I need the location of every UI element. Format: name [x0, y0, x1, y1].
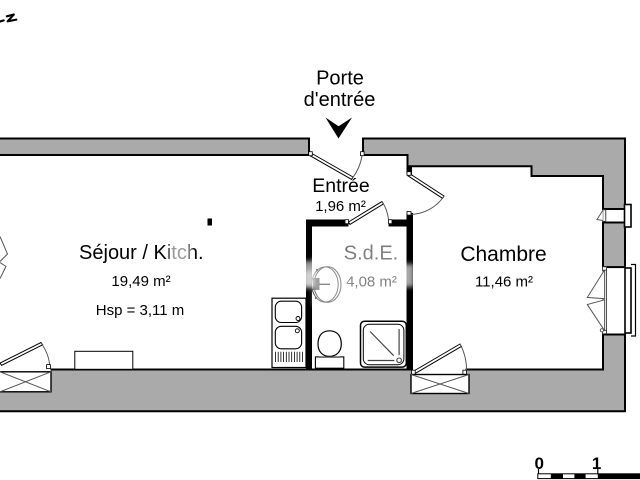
svg-text:Hsp = 3,11 m: Hsp = 3,11 m — [96, 302, 185, 319]
svg-text:Entrée: Entrée — [312, 175, 369, 197]
svg-text:19,49 m²: 19,49 m² — [111, 273, 170, 290]
svg-text:1,96 m²: 1,96 m² — [315, 198, 366, 215]
svg-text:11,46 m²: 11,46 m² — [475, 274, 533, 291]
svg-text:1: 1 — [592, 454, 601, 473]
svg-text:Chambre: Chambre — [460, 243, 546, 266]
svg-text:Porte: Porte — [316, 67, 364, 89]
svg-text:0: 0 — [534, 454, 543, 473]
svg-text:d'entrée: d'entrée — [304, 89, 376, 111]
